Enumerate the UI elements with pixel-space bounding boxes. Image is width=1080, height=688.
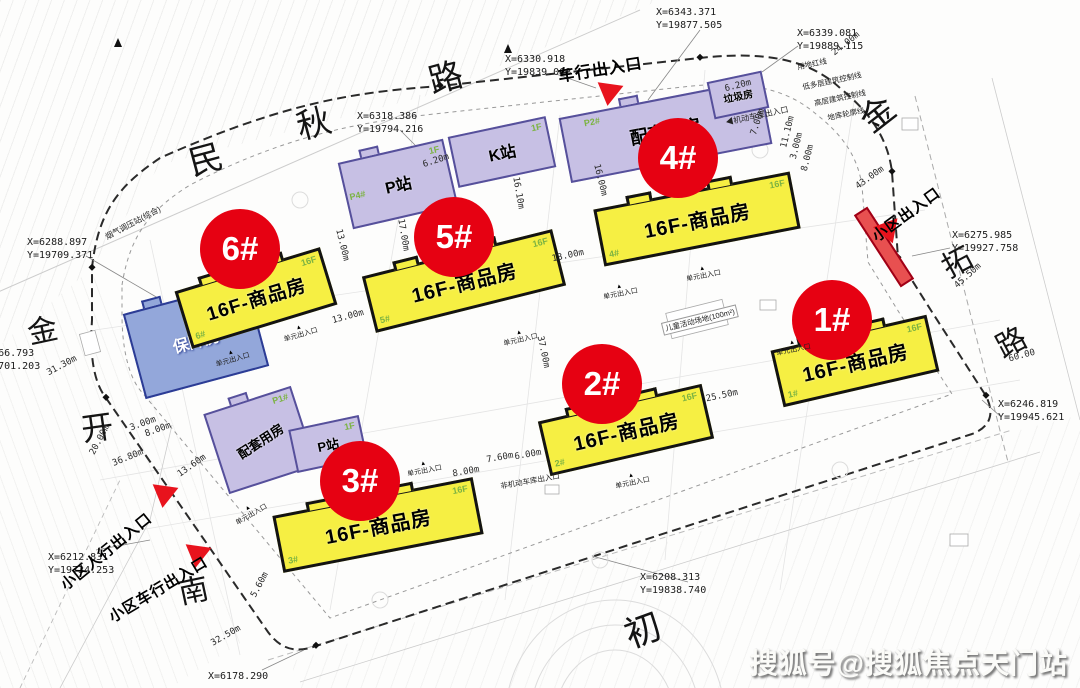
building-label: 配套用房	[233, 418, 287, 462]
building-floor-tag: 16F	[300, 254, 318, 268]
coord-x: X=6178.290	[208, 670, 268, 683]
coord-x: X=6246.819	[998, 398, 1064, 411]
badge-text: 6#	[222, 230, 259, 268]
building-number-badge-3: 3#	[320, 441, 400, 521]
coord-x: X=6343.371	[656, 6, 722, 19]
coord-y: Y=19927.758	[952, 242, 1018, 255]
entrance-arrow-icon	[150, 484, 179, 509]
coord-x: X=6275.985	[952, 229, 1018, 242]
building-floor-tag: 1F	[343, 420, 355, 432]
coord-x: X=6288.897	[27, 236, 93, 249]
coordinate-callout: X=6266.793Y=19701.203	[0, 347, 40, 373]
building-number-tag: 2#	[554, 457, 566, 469]
building-tag: P4#	[349, 189, 367, 202]
coord-y: Y=19709.371	[27, 249, 93, 262]
building-label: K站	[486, 137, 518, 166]
watermark: 搜狐号@搜狐焦点天门站	[750, 642, 1068, 682]
coord-y: Y=19701.203	[0, 360, 40, 373]
coordinate-callout: X=6246.819Y=19945.621	[998, 398, 1064, 424]
coordinate-callout: X=6288.897Y=19709.371	[27, 236, 93, 262]
building-number-tag: 5#	[379, 313, 391, 325]
badge-text: 2#	[584, 365, 621, 403]
building-number-tag: 3#	[287, 554, 299, 566]
building-number-badge-2: 2#	[562, 344, 642, 424]
coord-y: Y=19794.216	[357, 123, 423, 136]
site-plan-canvas: P4# P站 1F K站 1F P2# 配套用房 3F 垃圾房 保障房 P1# …	[0, 0, 1080, 688]
building-floor-tag: 16F	[531, 236, 548, 249]
coord-x: X=6266.793	[0, 347, 40, 360]
building-number-badge-4: 4#	[638, 118, 718, 198]
badge-text: 4#	[660, 139, 697, 177]
building-number-tag: 1#	[787, 388, 799, 400]
badge-text: 3#	[342, 462, 379, 500]
building-number-tag: 4#	[608, 248, 620, 260]
coordinate-callout: X=6318.386Y=19794.216	[357, 110, 423, 136]
badge-text: 5#	[436, 218, 473, 256]
coordinate-callout: X=6178.290	[208, 670, 268, 683]
badge-text: 1#	[814, 301, 851, 339]
coord-x: X=6318.386	[357, 110, 423, 123]
coordinate-callout: X=6343.371Y=19877.505	[656, 6, 722, 32]
building-tag: P1#	[271, 391, 289, 405]
coordinate-callout: X=6208.313Y=19838.740	[640, 571, 706, 597]
building-floor-tag: 1F	[530, 121, 542, 133]
coord-y: Y=19945.621	[998, 411, 1064, 424]
building-label: P站	[382, 169, 413, 198]
building-tag: P2#	[583, 115, 601, 128]
coord-y: Y=19838.740	[640, 584, 706, 597]
entrance-arrow-icon	[595, 82, 624, 107]
building-floor-tag: 16F	[906, 321, 923, 334]
building-number-badge-5: 5#	[414, 197, 494, 277]
building-number-badge-6: 6#	[200, 209, 280, 289]
building-floor-tag: 16F	[451, 483, 468, 496]
coord-x: X=6208.313	[640, 571, 706, 584]
coord-y: Y=19877.505	[656, 19, 722, 32]
building-number-tag: 6#	[194, 329, 207, 341]
building-label: 16F-商品房	[641, 194, 753, 243]
building-floor-tag: 16F	[681, 390, 698, 403]
coordinate-callout: X=6275.985Y=19927.758	[952, 229, 1018, 255]
building-floor-tag: 16F	[768, 178, 785, 191]
